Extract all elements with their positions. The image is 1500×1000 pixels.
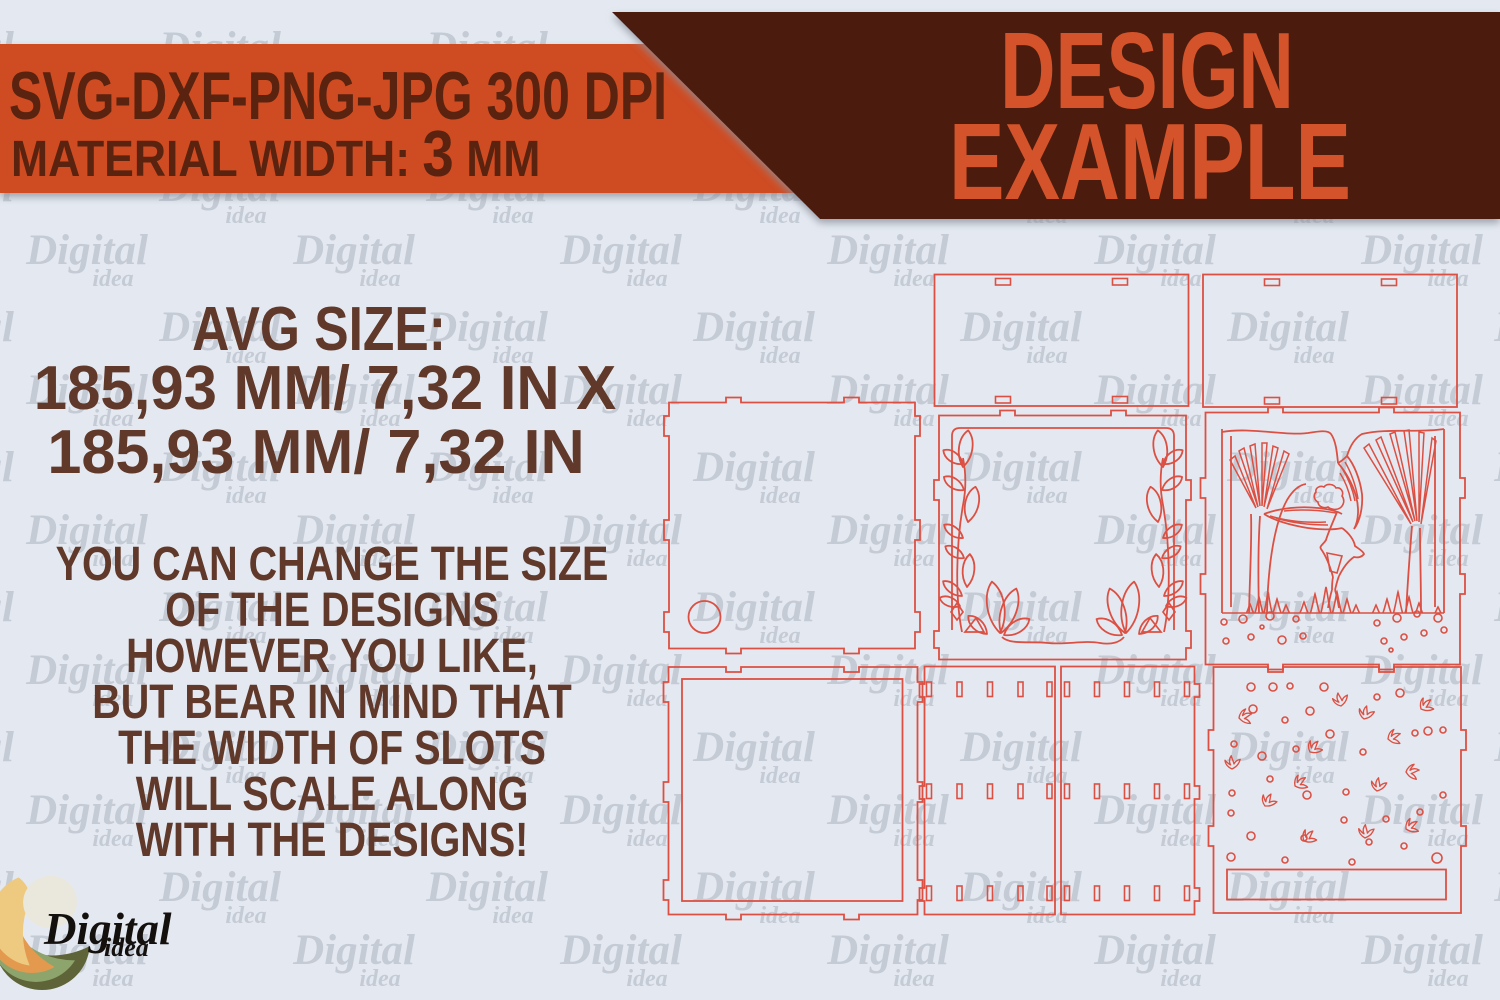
- svg-text:idea: idea: [104, 933, 149, 962]
